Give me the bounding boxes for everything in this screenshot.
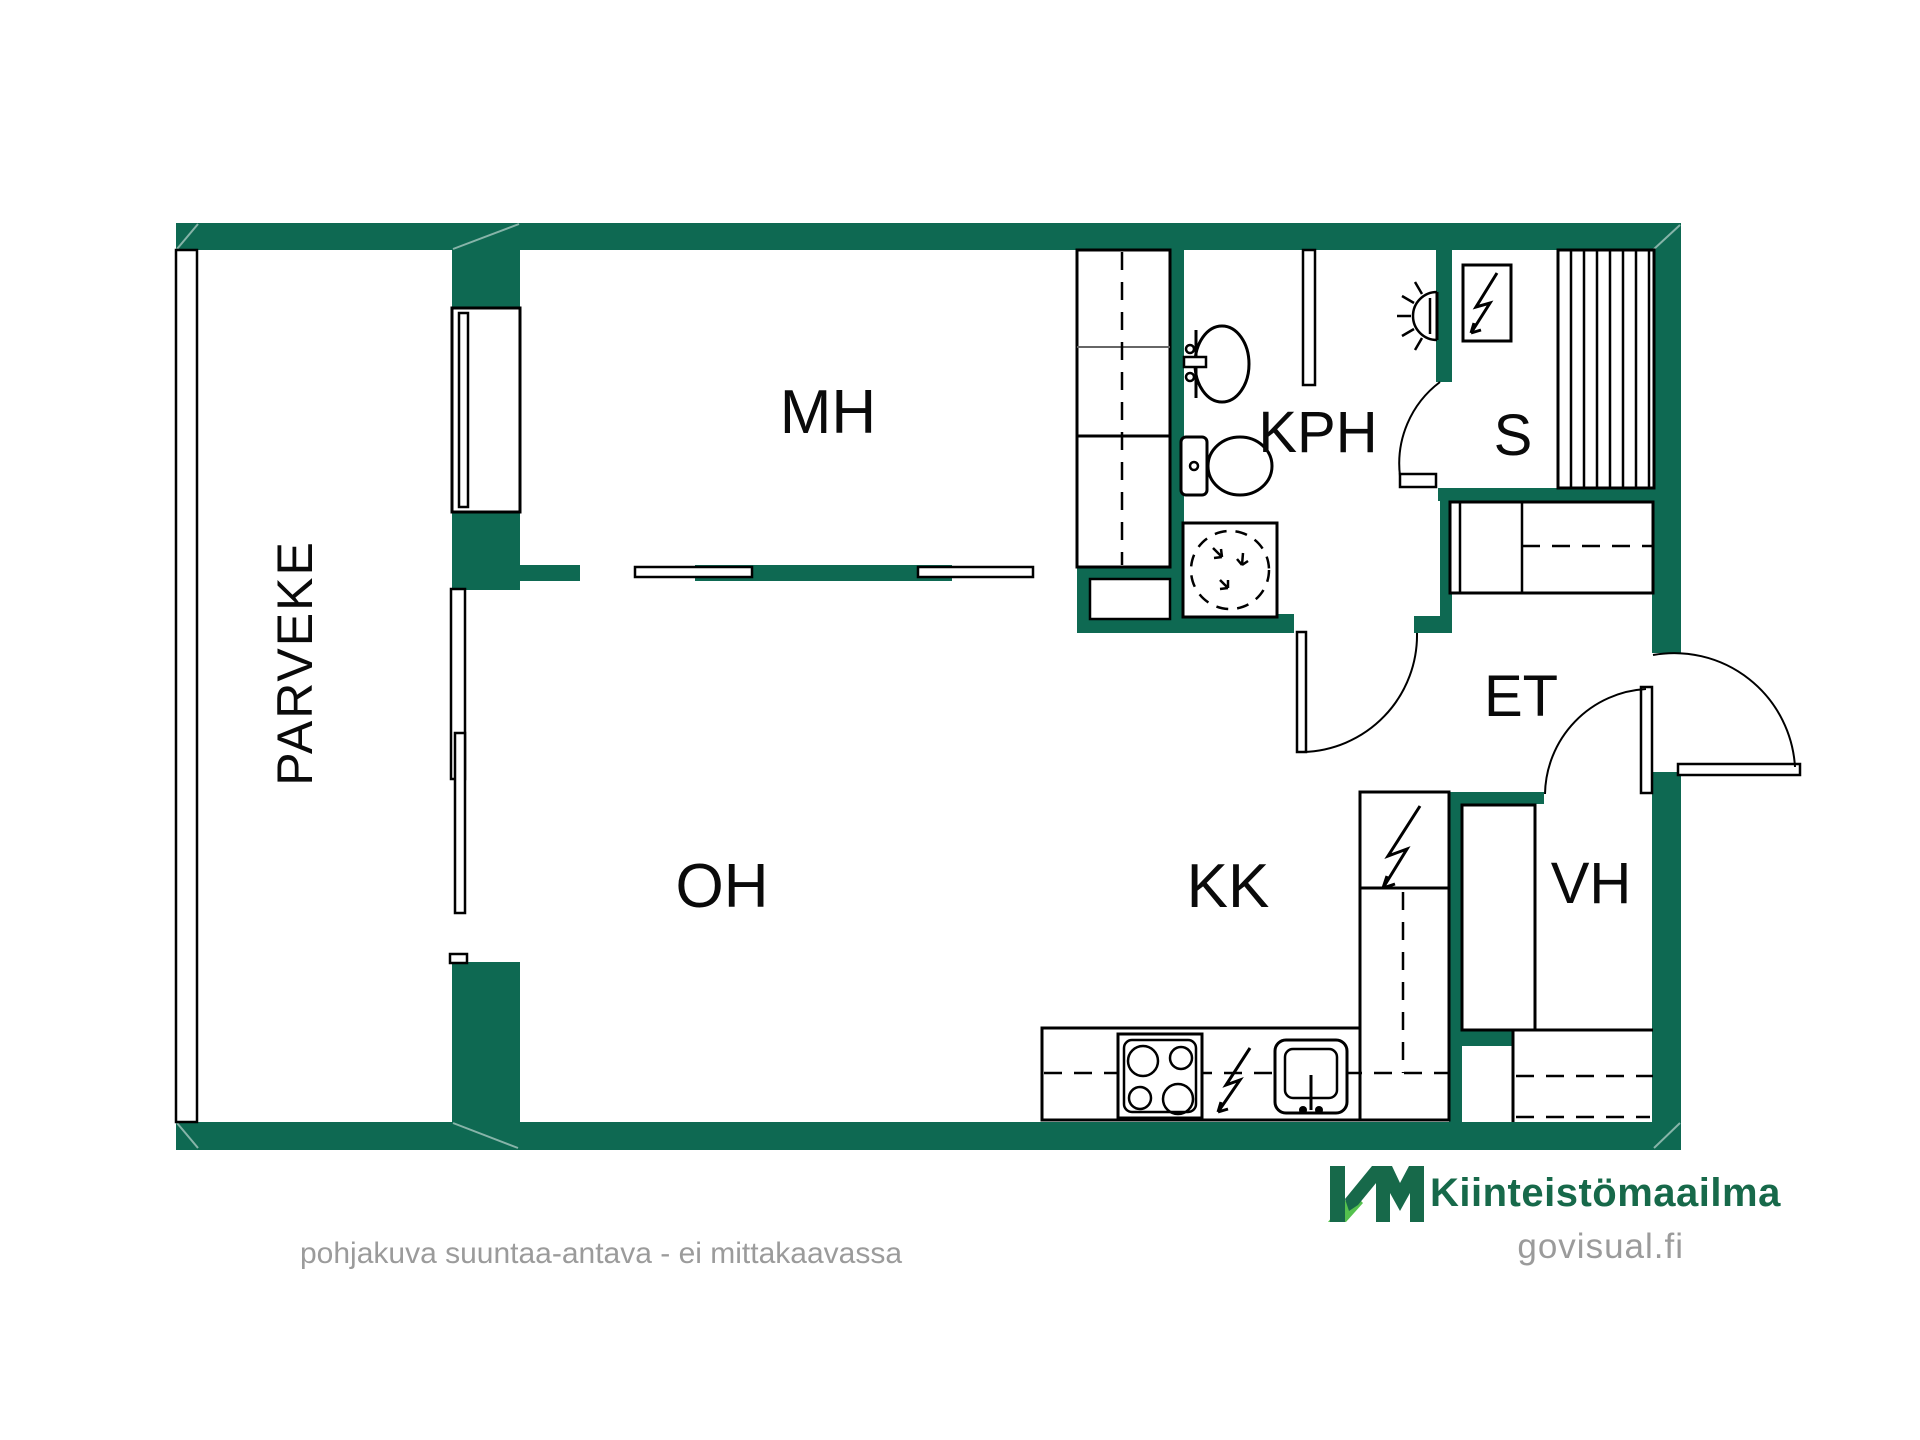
room-label-oh: OH: [676, 852, 769, 921]
vh-tall-cabinet: [1462, 805, 1535, 1030]
sauna-benches: [1558, 250, 1654, 488]
stove-icon: [1118, 1034, 1202, 1118]
balcony-door-panel-2: [455, 733, 465, 913]
wall-balcony-top: [452, 250, 520, 308]
wall-kk-vh: [1449, 792, 1462, 1122]
wall-s-bottom: [1438, 488, 1654, 501]
mh-sliding-door-panel-left: [635, 567, 752, 577]
washing-machine-icon: [1183, 523, 1277, 617]
km-logo-icon: [1328, 1166, 1424, 1222]
kph-door-leaf: [1297, 632, 1306, 752]
website-text: govisual.fi: [1517, 1227, 1684, 1266]
km-logo-k-stem: [1330, 1166, 1345, 1222]
wall-light-icon: [1397, 282, 1437, 350]
vh-door-leaf: [1641, 687, 1652, 793]
bedroom-mh: [635, 250, 1170, 577]
km-logo-m: [1376, 1166, 1424, 1222]
wall-balcony-mid: [452, 512, 520, 590]
sauna-stove-icon: [1463, 265, 1511, 341]
sauna-door-leaf: [1400, 474, 1436, 487]
room-label-kph: KPH: [1258, 400, 1377, 465]
wall-kph-door-stub: [1414, 616, 1442, 633]
sink-icon: [1275, 1040, 1347, 1114]
walls: [176, 223, 1681, 1150]
vh-lower-cabinets: [1513, 1030, 1653, 1122]
room-label-parveke: PARVEKE: [267, 540, 323, 786]
balcony-railing-wall: [176, 250, 197, 1122]
balcony-door-track-cap: [450, 954, 467, 963]
shaft-niche: [1090, 579, 1170, 619]
wall-balcony-bottom: [452, 962, 520, 1122]
wall-mh-oh-stub: [518, 565, 580, 581]
wall-right-lower: [1652, 772, 1681, 1122]
wall-vh-stub: [1461, 1030, 1513, 1046]
floorplan-drawing: PARVEKE MH KPH S ET OH KK VH Kiinteistöm…: [0, 0, 1920, 1440]
room-label-kk: KK: [1187, 852, 1270, 921]
disclaimer-caption: pohjakuva suuntaa-antava - ei mittakaava…: [300, 1237, 902, 1270]
room-label-mh: MH: [780, 378, 876, 447]
wall-bottom: [176, 1122, 1681, 1150]
hall-et: [1450, 502, 1800, 775]
brand-name: Kiinteistömaailma: [1430, 1171, 1781, 1215]
mh-sliding-door-panel-right: [918, 567, 1033, 577]
wall-et-vh: [1449, 792, 1544, 804]
mh-window-frame: [459, 313, 468, 507]
kph-door-swing: [1303, 633, 1417, 752]
floorplan-page: PARVEKE MH KPH S ET OH KK VH Kiinteistöm…: [0, 0, 1920, 1440]
shower-partition: [1303, 250, 1315, 385]
wall-top: [176, 223, 1681, 250]
kitchen-kk: [1042, 792, 1449, 1120]
sauna-door-swing: [1399, 382, 1440, 476]
entrance-door-swing: [1653, 653, 1795, 767]
room-label-s: S: [1494, 403, 1533, 468]
mh-wardrobe: [1077, 250, 1170, 567]
et-cabinet: [1450, 502, 1653, 593]
branding: Kiinteistömaailma govisual.fi pohjakuva …: [300, 1166, 1781, 1270]
vh-door-swing: [1545, 689, 1646, 794]
kk-tall-unit: [1360, 792, 1449, 1120]
entrance-door-leaf: [1678, 764, 1800, 775]
wall-right-upper: [1652, 250, 1681, 653]
room-label-et: ET: [1484, 664, 1558, 729]
room-label-vh: VH: [1551, 851, 1632, 916]
washbasin-icon: [1184, 326, 1249, 402]
